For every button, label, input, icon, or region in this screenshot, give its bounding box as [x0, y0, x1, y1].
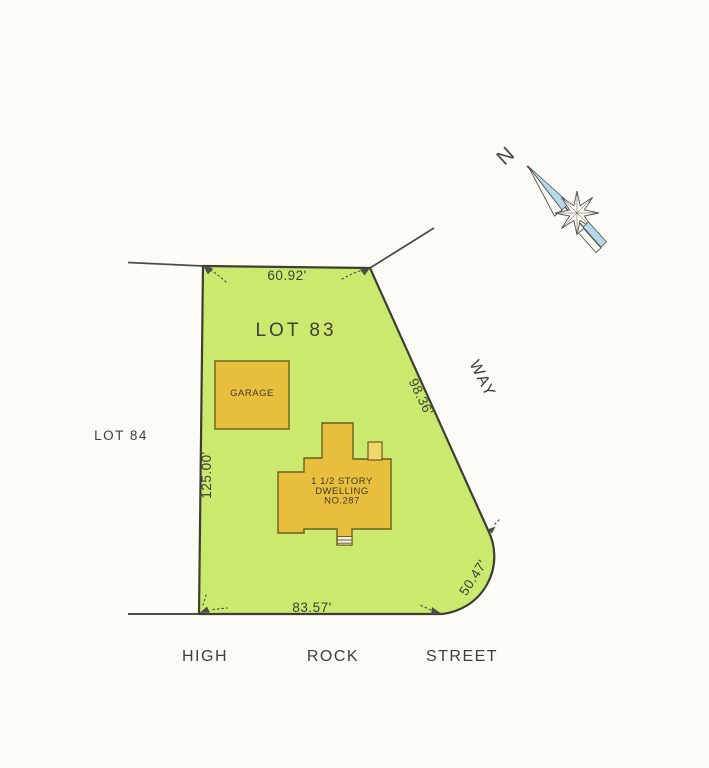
- dwelling-chimney: [368, 442, 382, 460]
- north-label: N: [492, 143, 519, 170]
- way-line-extension: [370, 228, 434, 268]
- dimension-left-side: 125.00': [199, 451, 214, 498]
- north-arrow: N: [492, 143, 606, 253]
- lot-84-label: LOT 84: [94, 428, 148, 443]
- dimension-street-frontage: 83.57': [292, 600, 331, 615]
- way-street-label: WAY: [466, 358, 499, 401]
- dimension-rear: 60.92': [267, 268, 306, 283]
- compass-needle-white-vane: [528, 166, 562, 216]
- dwelling-steps: [338, 536, 352, 545]
- dwelling-label-line3: NO.287: [324, 496, 360, 507]
- high-street-word: HIGH: [182, 648, 228, 665]
- rear-line-extension: [128, 263, 203, 267]
- lot-83-label: LOT 83: [255, 320, 336, 341]
- garage-label: GARAGE: [230, 388, 274, 399]
- rock-street-word: ROCK: [307, 648, 359, 665]
- plot-plan-drawing: GARAGE 1 1/2 STORY DWELLING NO.287 LOT 8…: [0, 0, 709, 768]
- street-street-word: STREET: [426, 648, 498, 665]
- tick-curve-top: [493, 520, 499, 526]
- plot-plan-page: GARAGE 1 1/2 STORY DWELLING NO.287 LOT 8…: [0, 0, 709, 768]
- garage-footprint: GARAGE: [215, 361, 289, 429]
